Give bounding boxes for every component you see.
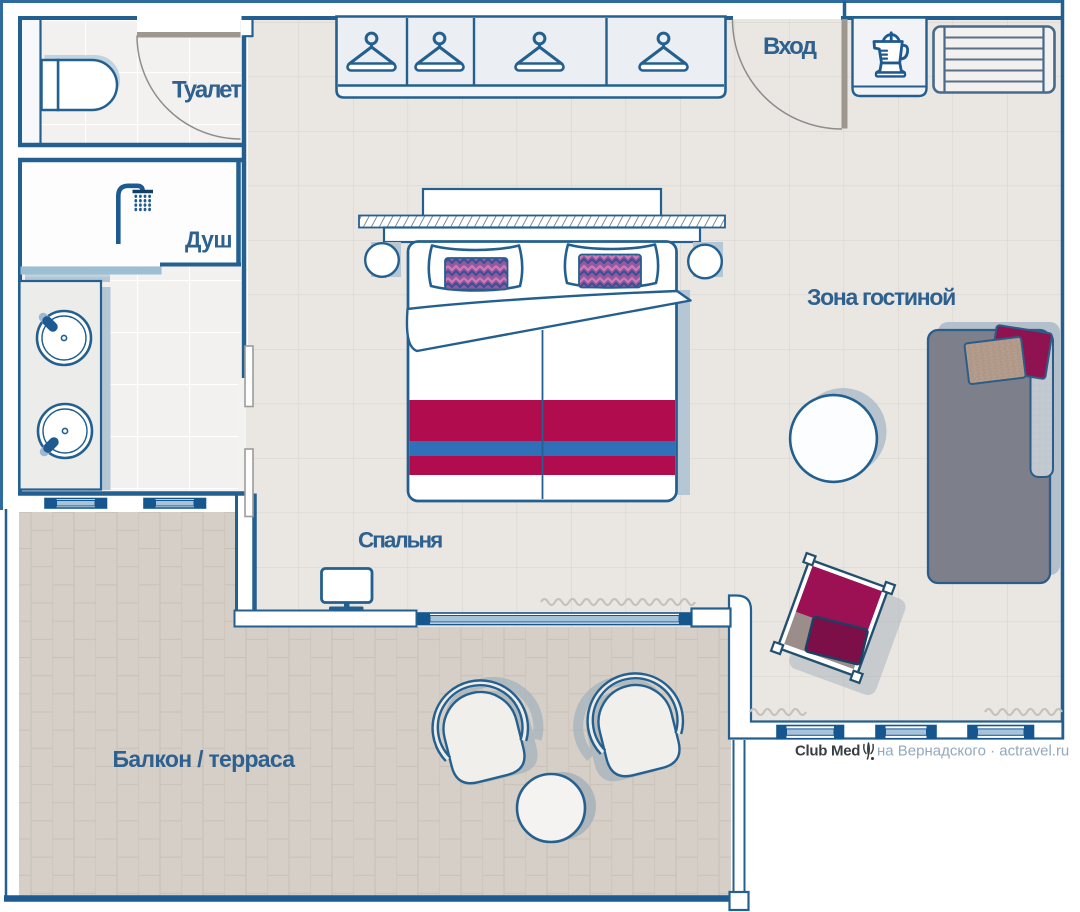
svg-text:на Вернадского · actravel.ru: на Вернадского · actravel.ru — [877, 743, 1069, 760]
svg-text:Душ: Душ — [185, 227, 232, 253]
svg-text:Спальня: Спальня — [358, 528, 442, 553]
svg-text:Club Med: Club Med — [795, 743, 860, 760]
svg-text:Туалет: Туалет — [172, 77, 242, 104]
svg-text:Зона гостиной: Зона гостиной — [807, 284, 955, 310]
svg-text:Вход: Вход — [763, 33, 817, 60]
svg-text:Балкон / терраса: Балкон / терраса — [113, 746, 296, 772]
